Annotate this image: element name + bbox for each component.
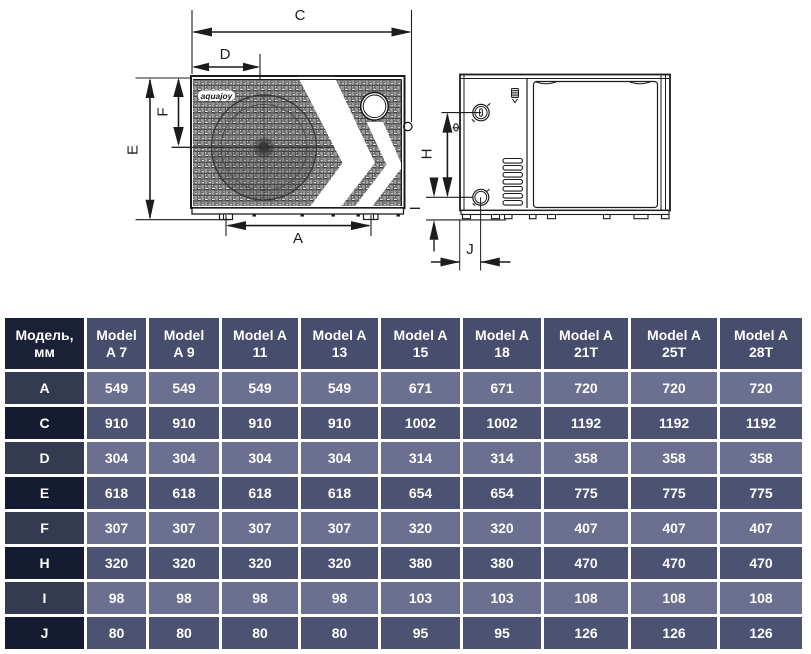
- svg-text:E: E: [125, 145, 142, 155]
- svg-text:F: F: [155, 107, 172, 116]
- svg-text:aquajoy: aquajoy: [201, 91, 233, 101]
- svg-text:H: H: [419, 149, 436, 160]
- svg-text:I: I: [407, 206, 424, 210]
- svg-text:C: C: [295, 7, 306, 24]
- svg-text:D: D: [220, 46, 231, 63]
- svg-text:J: J: [466, 241, 474, 258]
- svg-text:A: A: [293, 230, 303, 247]
